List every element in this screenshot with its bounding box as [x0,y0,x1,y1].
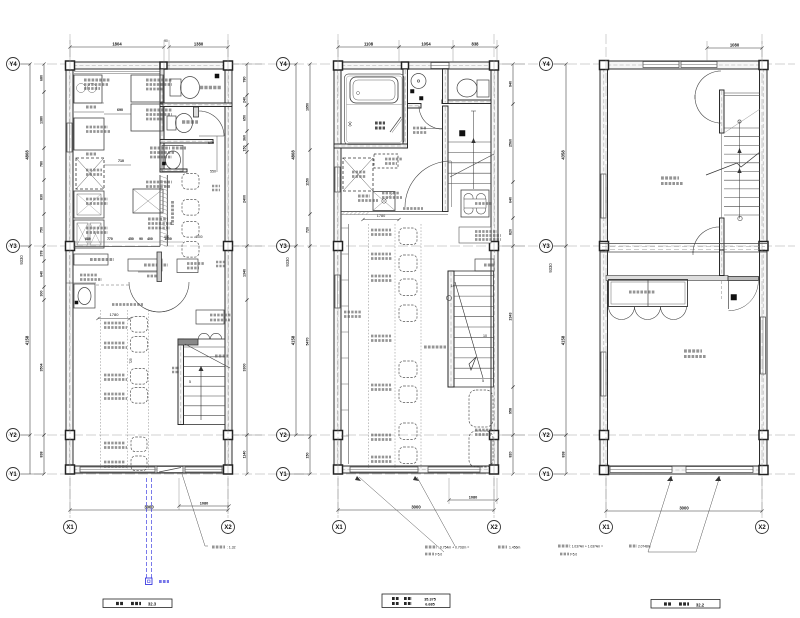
svg-text:1380: 1380 [194,42,204,47]
svg-text:10: 10 [483,334,487,338]
svg-text:Y4: Y4 [279,62,287,68]
svg-text:3504: 3504 [40,364,44,372]
svg-text:6.685: 6.685 [425,603,435,607]
svg-text:t=5.0: t=5.0 [570,553,577,557]
svg-text:450: 450 [128,237,134,241]
svg-text:150: 150 [243,146,247,152]
svg-text:958: 958 [509,408,513,414]
svg-text:720: 720 [306,227,310,233]
svg-text:2343: 2343 [509,313,513,321]
svg-text:300: 300 [40,291,44,297]
svg-text:4808: 4808 [291,150,296,160]
svg-text:378: 378 [40,251,44,257]
svg-text:1054: 1054 [421,42,431,47]
svg-text:4808: 4808 [25,150,30,160]
svg-text:450: 450 [164,235,170,239]
svg-text:1108: 1108 [364,42,374,47]
svg-text:35.375: 35.375 [424,598,436,602]
svg-text:838: 838 [40,452,44,458]
svg-text:: 1.32: : 1.32 [227,546,236,550]
svg-text:400: 400 [147,237,153,241]
svg-text:360: 360 [243,135,247,141]
svg-text:9330: 9330 [285,257,290,267]
svg-text:Y1: Y1 [542,472,550,478]
svg-text:Y1: Y1 [9,472,17,478]
svg-text:5470: 5470 [306,338,310,346]
svg-text:1950: 1950 [306,103,310,111]
svg-text:600: 600 [208,141,214,145]
svg-text:2.0748m: 2.0748m [638,545,651,549]
svg-text:240: 240 [243,97,247,103]
svg-text:Y1: Y1 [279,472,287,478]
svg-text:1.456m: 1.456m [509,546,520,550]
svg-text:150: 150 [306,453,310,459]
svg-text:1804: 1804 [112,42,122,47]
svg-text:750: 750 [40,227,44,233]
svg-text:Y2: Y2 [279,433,287,439]
svg-text:X1: X1 [335,525,343,531]
svg-text:3000: 3000 [679,506,689,511]
svg-text:1080: 1080 [469,496,477,500]
svg-text:2400: 2400 [243,195,247,203]
svg-text:838: 838 [472,42,480,47]
svg-text:3300: 3300 [243,364,247,372]
svg-text:X2: X2 [224,525,232,531]
svg-text:780: 780 [40,161,44,167]
svg-text:2560: 2560 [509,139,513,147]
svg-text:820: 820 [509,229,513,235]
svg-text:4158: 4158 [561,335,566,345]
svg-text:640: 640 [509,197,513,203]
svg-text:X2: X2 [490,525,498,531]
svg-text:640: 640 [40,271,44,277]
svg-text:680: 680 [40,75,44,81]
svg-text:32.3: 32.3 [148,602,157,607]
svg-text:4158: 4158 [291,335,296,345]
svg-text:5: 5 [482,379,484,383]
svg-text:4358: 4358 [561,150,566,160]
svg-text:550: 550 [210,170,216,174]
svg-text:830: 830 [40,194,44,200]
svg-text:X1: X1 [602,525,610,531]
svg-text:3000: 3000 [144,505,154,510]
svg-text:X2: X2 [758,525,766,531]
svg-text:90: 90 [164,39,168,43]
svg-text:: 1.0374m + 1.0374m =: : 1.0374m + 1.0374m = [570,545,603,549]
svg-text:690: 690 [117,108,123,112]
svg-text:X1: X1 [66,525,74,531]
svg-text:14: 14 [451,284,455,288]
svg-text:Y3: Y3 [279,244,287,250]
svg-text:770: 770 [107,237,113,241]
svg-text:1340: 1340 [243,269,247,277]
svg-text:Y4: Y4 [9,62,17,68]
svg-text:1080: 1080 [730,43,740,48]
svg-text:1000: 1000 [195,235,202,239]
svg-text:5: 5 [189,380,191,384]
svg-text:1380: 1380 [40,116,44,124]
svg-text:650: 650 [243,115,247,121]
svg-text:1140: 1140 [243,451,247,459]
svg-text:9330: 9330 [19,255,24,265]
svg-text:780: 780 [243,77,247,83]
svg-text:1780: 1780 [110,312,120,317]
svg-text:32.2: 32.2 [696,603,705,608]
svg-text:Y4: Y4 [542,62,550,68]
svg-text:1150: 1150 [306,178,310,186]
svg-text:4158: 4158 [25,335,30,345]
svg-text:Y2: Y2 [542,433,550,439]
svg-text:Y3: Y3 [9,244,17,250]
svg-text:t=5.0: t=5.0 [435,553,442,557]
svg-text:725: 725 [129,358,133,364]
svg-text:9330: 9330 [548,263,553,273]
svg-text:: 0.754m + 0.702m =: : 0.754m + 0.702m = [438,546,469,550]
svg-text:Y3: Y3 [542,244,550,250]
svg-text:940: 940 [509,81,513,87]
svg-text:838: 838 [562,452,566,458]
svg-text:710: 710 [118,159,124,163]
svg-text:820: 820 [509,452,513,458]
svg-text:90: 90 [139,237,143,241]
svg-text:1080: 1080 [200,502,208,506]
svg-text:3000: 3000 [411,505,421,510]
svg-text:680: 680 [85,237,91,241]
svg-text:Y2: Y2 [9,433,17,439]
